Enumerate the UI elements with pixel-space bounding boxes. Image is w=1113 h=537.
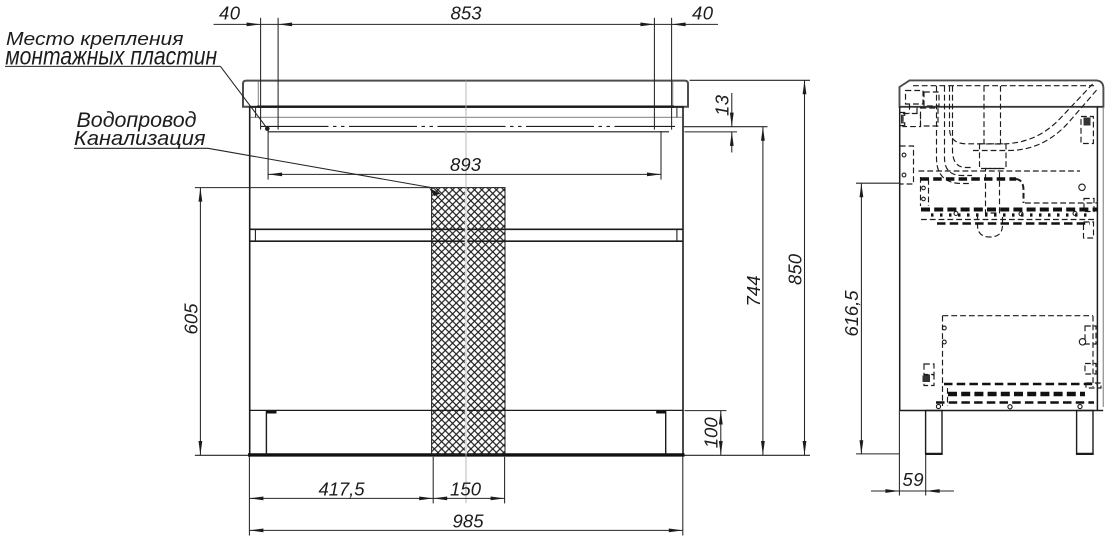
svg-text:417,5: 417,5 — [319, 478, 366, 499]
svg-text:893: 893 — [450, 154, 482, 175]
svg-text:13: 13 — [712, 94, 733, 116]
svg-text:150: 150 — [450, 478, 482, 499]
svg-text:59: 59 — [903, 469, 924, 490]
svg-text:744: 744 — [743, 276, 764, 307]
svg-text:605: 605 — [180, 303, 201, 335]
svg-text:40: 40 — [219, 3, 241, 24]
svg-text:850: 850 — [784, 253, 805, 285]
svg-text:853: 853 — [451, 3, 483, 24]
svg-text:монтажных пластин: монтажных пластин — [5, 43, 217, 71]
svg-text:40: 40 — [692, 3, 714, 24]
svg-text:Канализация: Канализация — [74, 128, 206, 150]
svg-text:100: 100 — [701, 417, 722, 449]
svg-text:985: 985 — [453, 510, 485, 531]
svg-text:616,5: 616,5 — [841, 290, 862, 337]
